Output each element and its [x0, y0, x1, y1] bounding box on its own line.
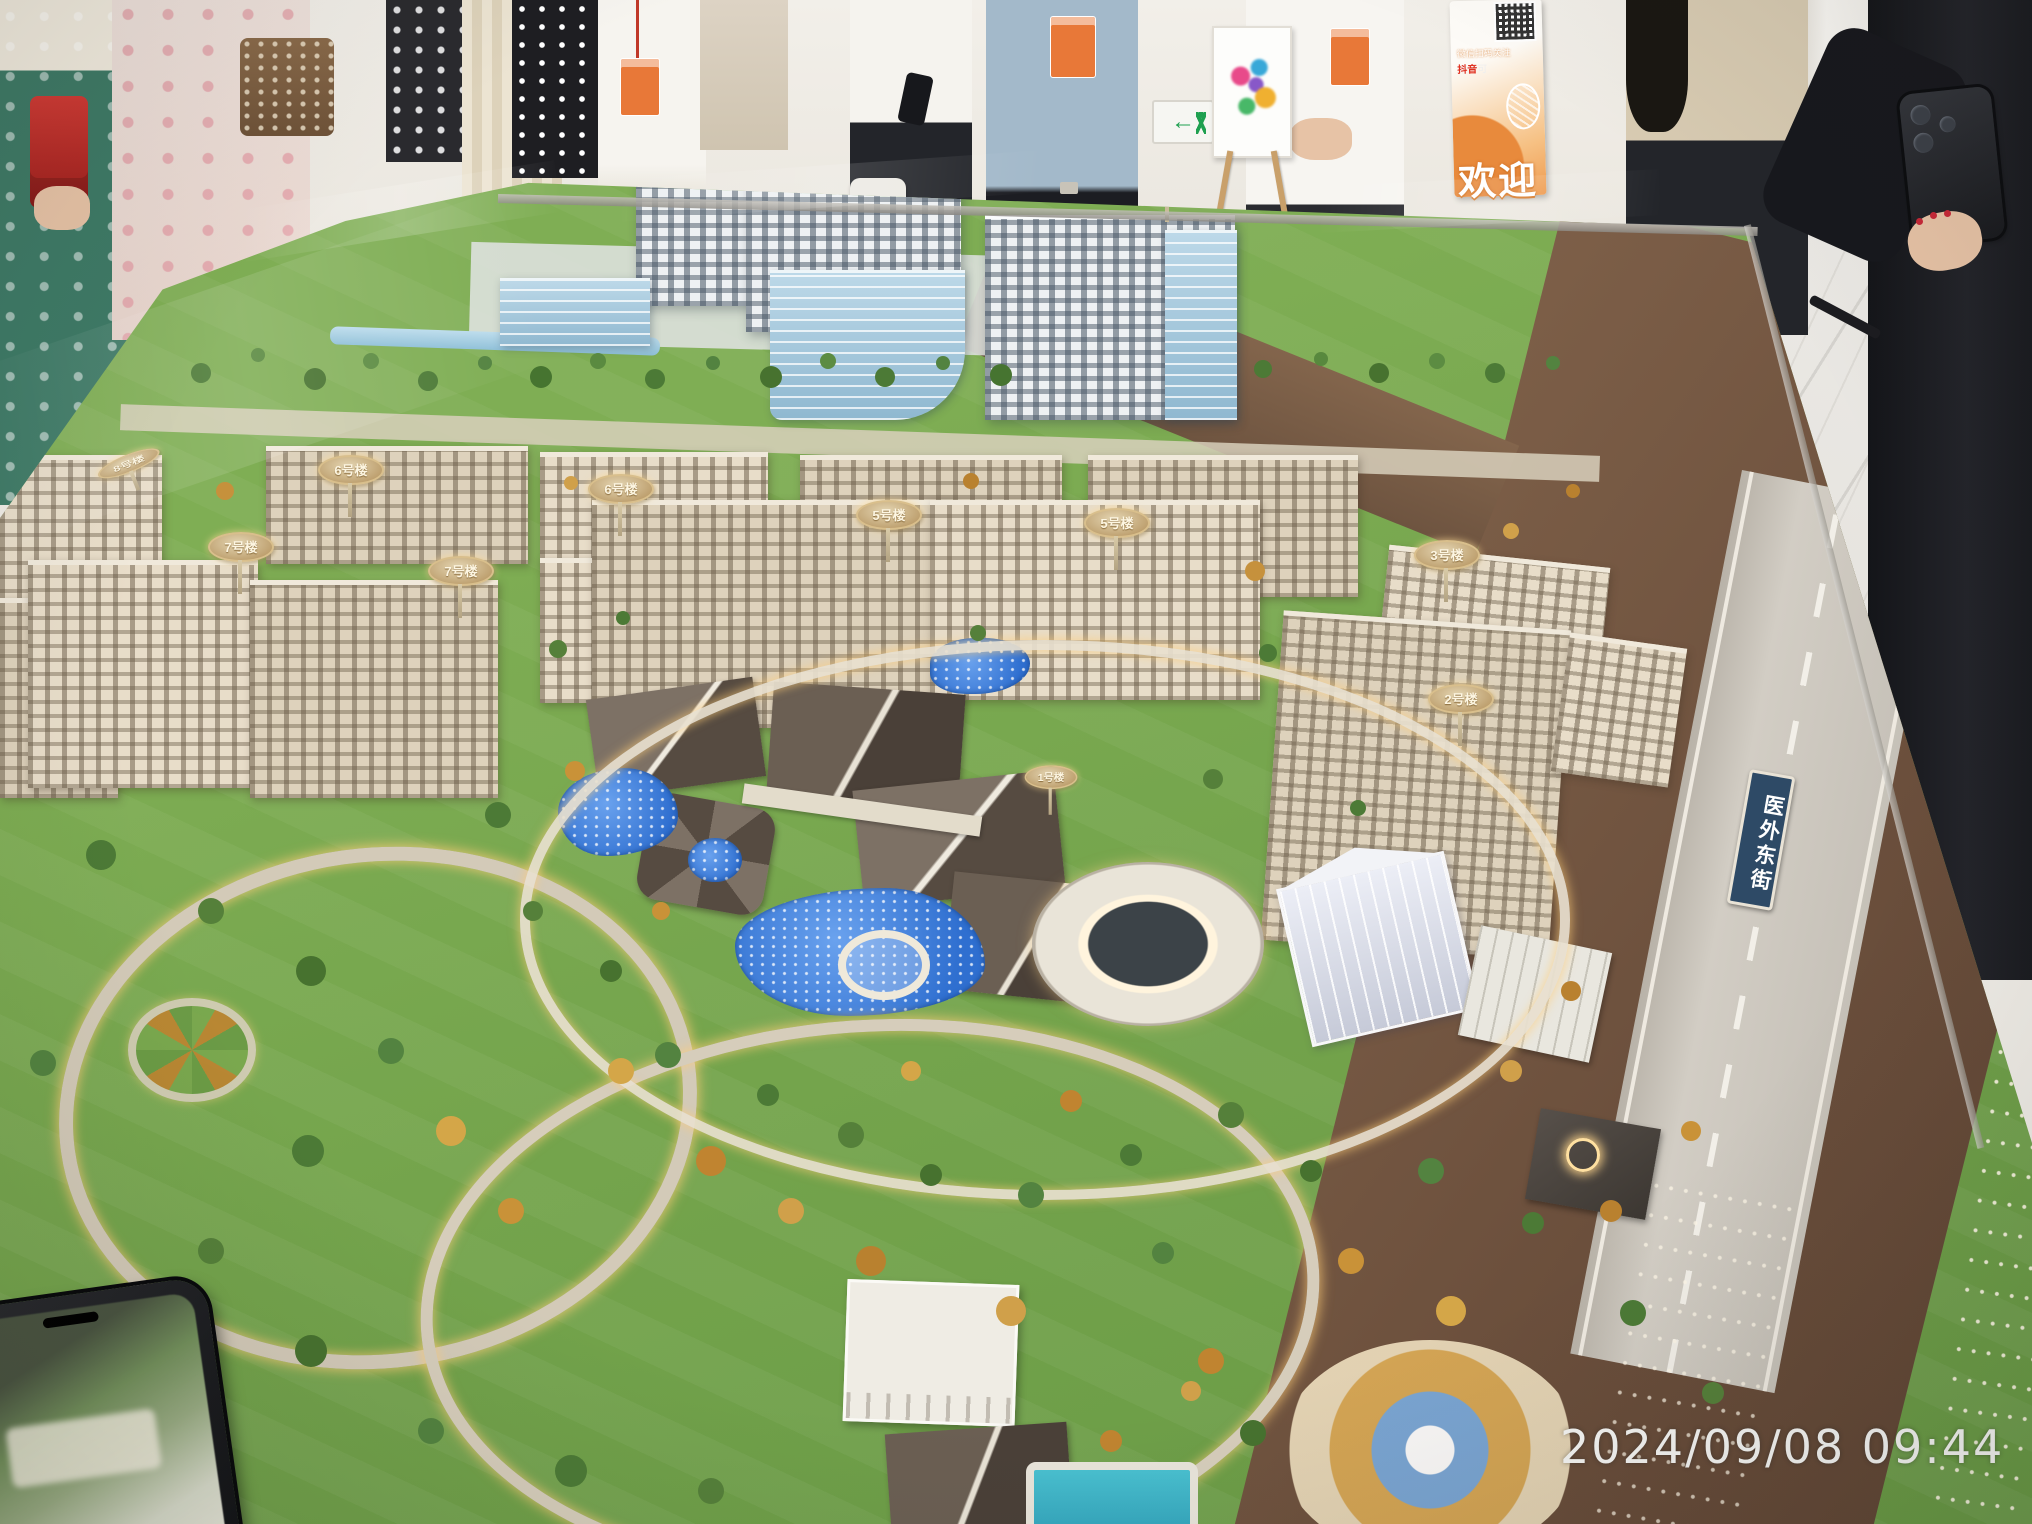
fingernail	[1930, 212, 1937, 219]
visitor-hand	[34, 186, 90, 230]
abstract-painting	[1222, 46, 1284, 132]
foreground-camera-phone	[0, 1276, 246, 1524]
building-sign-label: 5号楼	[1084, 508, 1150, 538]
flat-roof-building	[843, 1279, 1020, 1427]
building-sign: 5号楼	[1084, 508, 1150, 540]
running-man-icon	[1196, 112, 1206, 134]
building-sign: 7号楼	[428, 556, 494, 588]
fingernail	[1944, 210, 1951, 217]
building-sign-label: 7号楼	[208, 532, 274, 562]
visitor-dark-floral	[386, 0, 474, 162]
residential-building	[266, 446, 528, 564]
douyin-brand: 抖音	[1457, 61, 1477, 77]
emergency-exit-sign: ←	[1152, 100, 1214, 144]
building-sign: 2号楼	[1428, 684, 1494, 716]
qr-code	[1493, 1, 1536, 42]
camera-preview-screen	[0, 1292, 232, 1524]
visitor-polka-dot-skirt	[512, 0, 606, 178]
building-sign-label: 6号楼	[588, 474, 654, 504]
building-sign: 1号楼	[1025, 765, 1078, 791]
building-sign: 6号楼	[588, 474, 654, 506]
curved-glass-podium	[770, 270, 965, 420]
easel-artwork	[1212, 26, 1292, 158]
building-sign-label: 6号楼	[318, 455, 384, 485]
building-sign-label: 2号楼	[1428, 684, 1494, 714]
residential-building	[28, 560, 258, 788]
letter-print-handbag	[240, 38, 334, 136]
swimming-pool	[1026, 1462, 1198, 1524]
poster-line1: 微信扫码关注	[1457, 46, 1511, 60]
residential-building	[1551, 632, 1687, 787]
fingernail	[1916, 218, 1923, 225]
visitor-badge	[1330, 28, 1370, 86]
building-sign: 6号楼	[318, 455, 384, 487]
glow-ring-logo	[1566, 1138, 1600, 1172]
showroom-photo: ← 微信扫码关注 抖音 用户可 欢迎	[0, 0, 2032, 1524]
building-sign-label: 7号楼	[428, 556, 494, 586]
visitor-badge	[620, 58, 660, 116]
camera-lens-icon	[1912, 132, 1934, 154]
building-sign-label: 3号楼	[1414, 540, 1480, 570]
camera-lens-icon	[1910, 104, 1932, 126]
glass-wing	[1165, 230, 1237, 420]
building-sign: 3号楼	[1414, 540, 1480, 572]
building-sign-label: 5号楼	[856, 500, 922, 530]
lit-path	[520, 640, 1570, 1200]
building-sign-label: 1号楼	[1025, 765, 1078, 789]
visitor-hair	[1626, 0, 1688, 132]
camera-timestamp: 2024/09/08 09:44	[1560, 1420, 2004, 1474]
visitor-badge	[1050, 16, 1096, 78]
clasped-hands	[1290, 118, 1352, 160]
belt-buckle	[1060, 182, 1078, 194]
camera-lens-icon	[1939, 115, 1957, 133]
welcome-poster: 微信扫码关注 抖音 用户可 欢迎	[1449, 0, 1546, 197]
visitor-beige-skirt	[700, 0, 788, 150]
poster-line2: 抖音 用户可	[1457, 60, 1487, 76]
doodle-egg-icon	[1506, 83, 1541, 130]
left-arrow-icon: ←	[1171, 108, 1195, 135]
building-sign: 7号楼	[208, 532, 274, 564]
lanyard	[636, 0, 639, 62]
building-sign: 5号楼	[856, 500, 922, 532]
